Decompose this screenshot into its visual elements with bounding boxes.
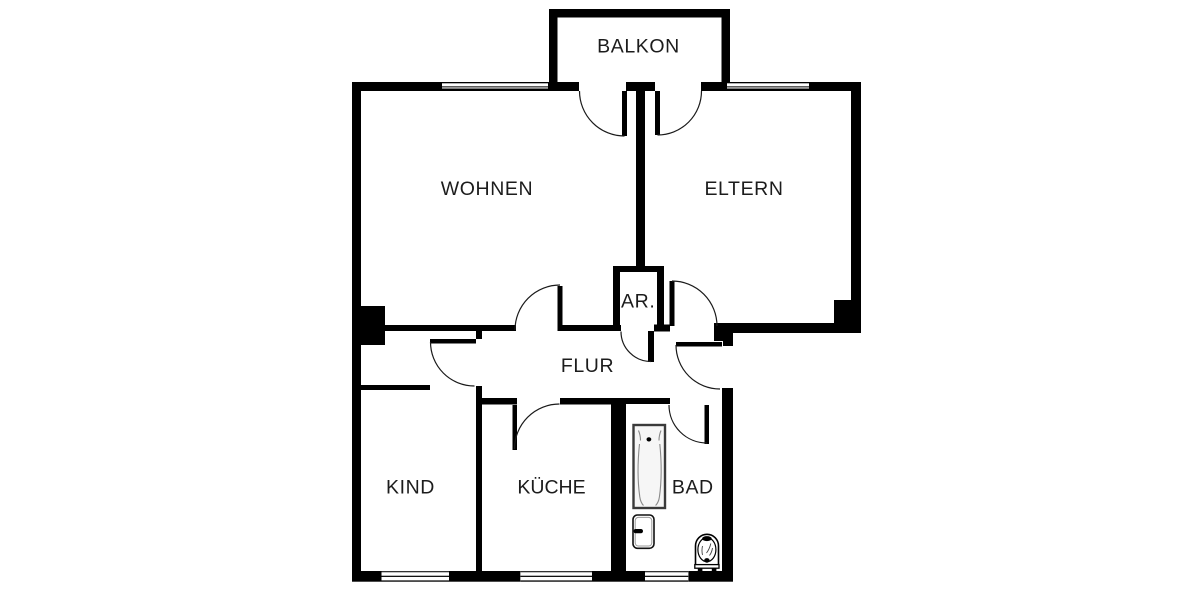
- svg-text:FLUR: FLUR: [561, 355, 614, 377]
- svg-text:WOHNEN: WOHNEN: [441, 178, 533, 200]
- svg-text:KIND: KIND: [386, 477, 435, 499]
- svg-text:AR.: AR.: [621, 291, 655, 313]
- svg-text:BAD: BAD: [672, 477, 714, 499]
- svg-text:BALKON: BALKON: [597, 36, 680, 58]
- svg-text:ELTERN: ELTERN: [704, 178, 783, 200]
- svg-text:KÜCHE: KÜCHE: [517, 477, 585, 499]
